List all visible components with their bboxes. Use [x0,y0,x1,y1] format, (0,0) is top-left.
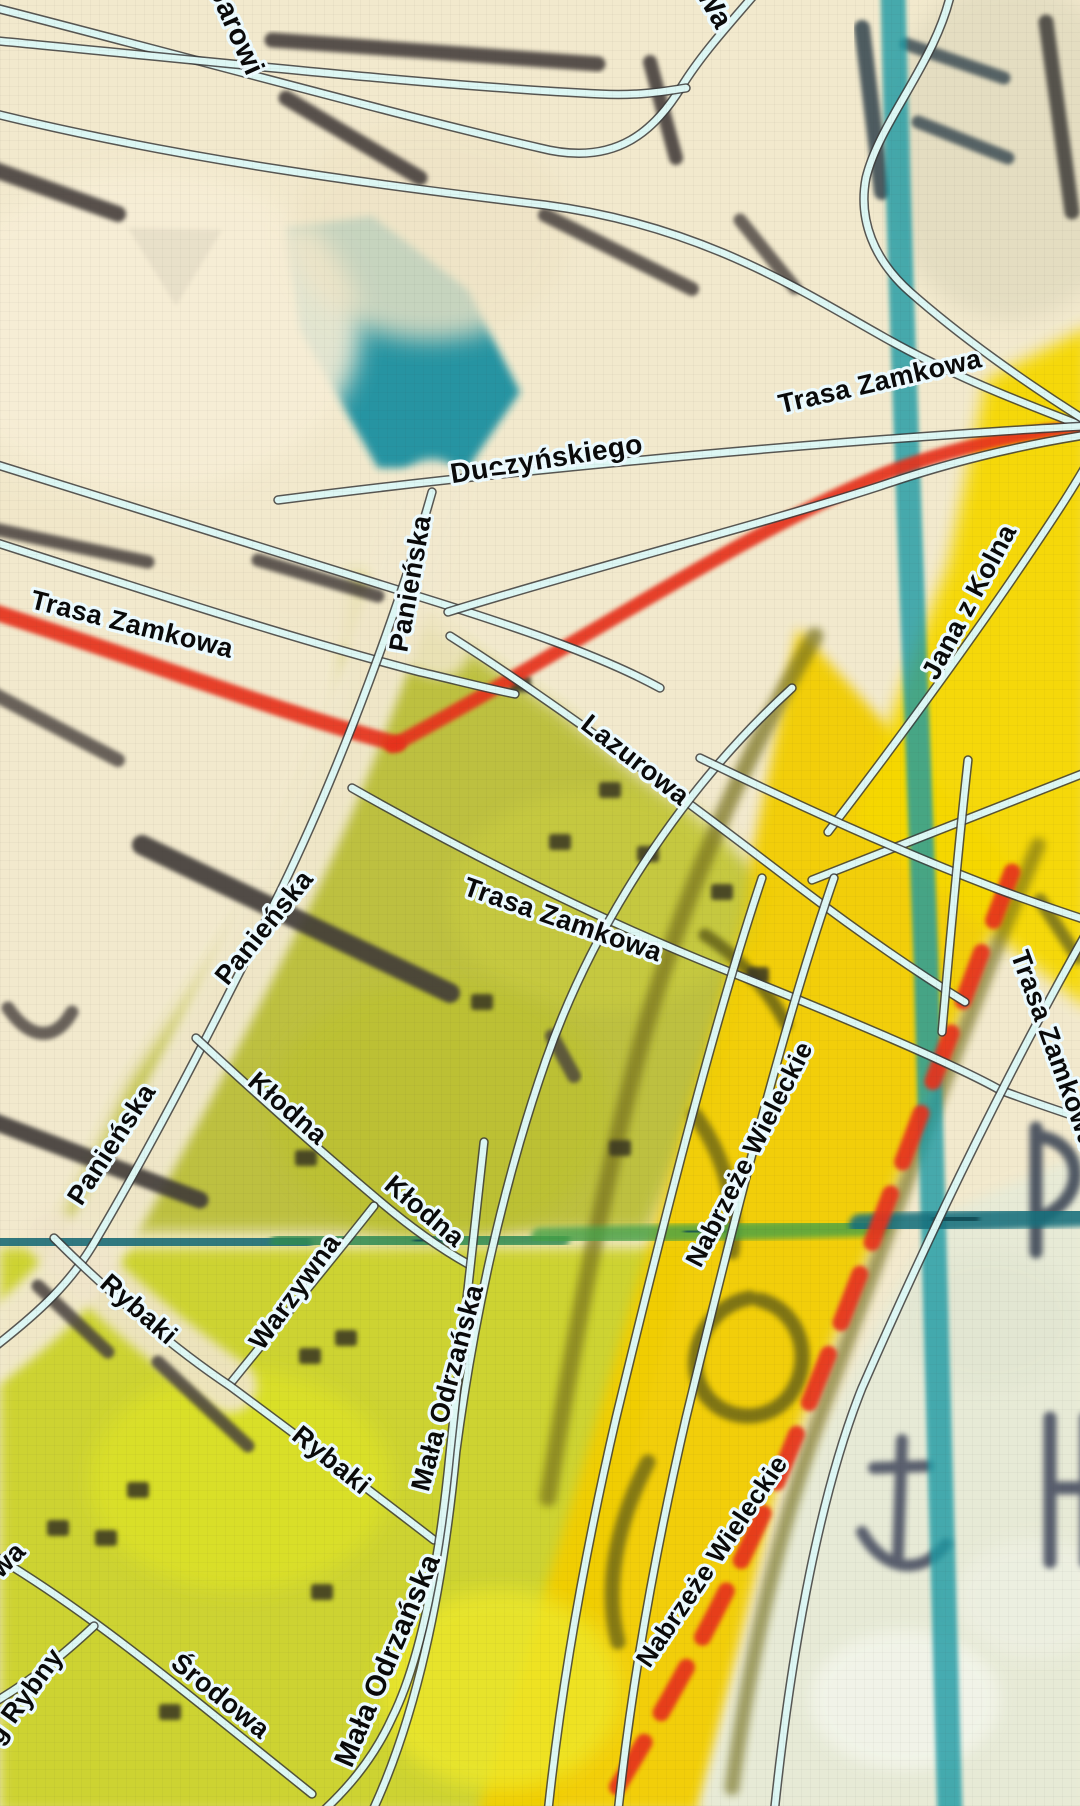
map-canvas[interactable]: JarowiWaTrasa ZamkowaDuczyńskiego–Panień… [0,0,1080,1806]
street-label-dash: – [489,455,508,488]
map-svg: JarowiWaTrasa ZamkowaDuczyńskiego–Panień… [0,0,1080,1806]
